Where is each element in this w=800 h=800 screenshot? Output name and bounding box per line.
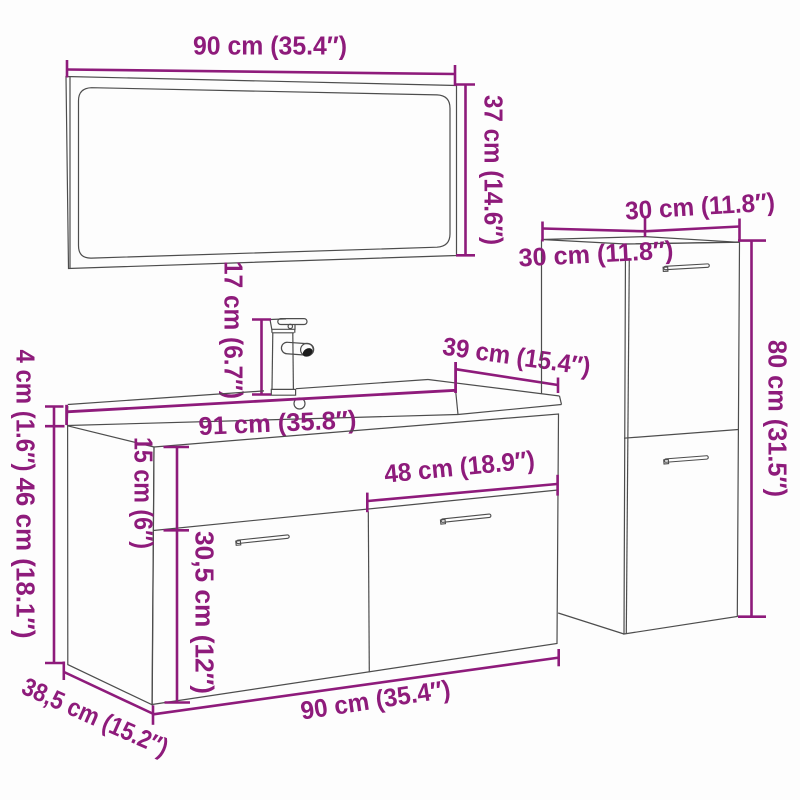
svg-text:90 cm (35.4″): 90 cm (35.4″) <box>193 33 347 61</box>
svg-text:15 cm (6″): 15 cm (6″) <box>129 437 157 549</box>
svg-text:37 cm (14.6″): 37 cm (14.6″) <box>479 95 507 245</box>
svg-text:46 cm (18.1″): 46 cm (18.1″) <box>11 478 39 639</box>
svg-text:80 cm (31.5″): 80 cm (31.5″) <box>763 340 791 497</box>
svg-text:30,5 cm (12″): 30,5 cm (12″) <box>190 531 218 694</box>
svg-text:4 cm (1.6″): 4 cm (1.6″) <box>11 350 39 472</box>
svg-text:17 cm (6.7″): 17 cm (6.7″) <box>219 261 247 399</box>
